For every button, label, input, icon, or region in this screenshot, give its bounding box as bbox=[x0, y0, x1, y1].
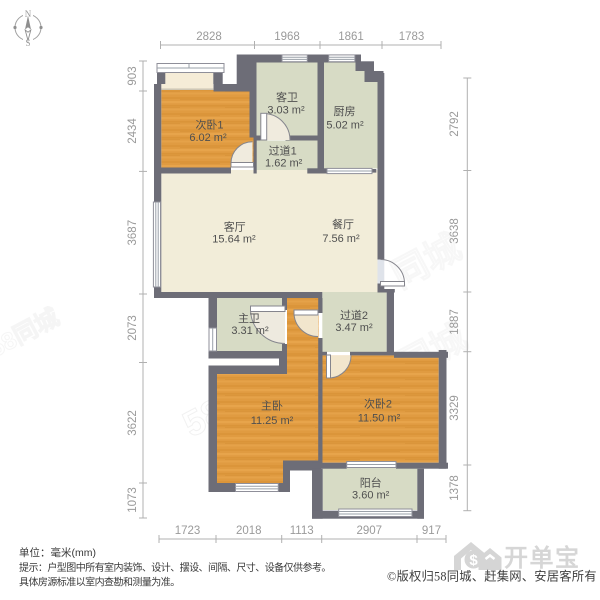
svg-text:2792: 2792 bbox=[449, 111, 461, 137]
svg-text:1783: 1783 bbox=[399, 31, 425, 43]
svg-text:餐厅: 餐厅 bbox=[332, 217, 354, 231]
svg-text:1968: 1968 bbox=[274, 31, 300, 43]
svg-text:3687: 3687 bbox=[127, 220, 139, 246]
svg-text:提示：户型图中所有室内装饰、设计、摆设、间隔、尺寸、设备仅供: 提示：户型图中所有室内装饰、设计、摆设、间隔、尺寸、设备仅供参考。 bbox=[19, 561, 331, 574]
svg-text:过道1: 过道1 bbox=[269, 143, 297, 157]
svg-text:©版权归58同城、赶集网、安居客所有: ©版权归58同城、赶集网、安居客所有 bbox=[387, 569, 597, 584]
svg-text:1073: 1073 bbox=[127, 487, 139, 513]
svg-text:阳台: 阳台 bbox=[360, 476, 382, 490]
svg-text:2907: 2907 bbox=[357, 525, 383, 537]
svg-text:3329: 3329 bbox=[449, 395, 461, 421]
svg-text:主卫: 主卫 bbox=[238, 312, 260, 325]
svg-text:1887: 1887 bbox=[449, 309, 461, 335]
svg-text:2073: 2073 bbox=[127, 315, 139, 341]
svg-text:1861: 1861 bbox=[338, 31, 364, 43]
svg-text:开单宝: 开单宝 bbox=[504, 544, 581, 572]
svg-text:客厅: 客厅 bbox=[224, 220, 246, 234]
svg-text:3.03 m²: 3.03 m² bbox=[267, 105, 305, 117]
svg-text:具体房源标准以室内查勘和测量为准。: 具体房源标准以室内查勘和测量为准。 bbox=[19, 576, 180, 589]
svg-text:客卫: 客卫 bbox=[276, 90, 298, 104]
svg-text:次卧2: 次卧2 bbox=[364, 397, 392, 411]
svg-text:917: 917 bbox=[422, 525, 441, 537]
svg-text:2018: 2018 bbox=[236, 525, 262, 537]
svg-text:1.62 m²: 1.62 m² bbox=[265, 157, 303, 169]
svg-text:3.47 m²: 3.47 m² bbox=[335, 322, 373, 334]
svg-text:3.31 m²: 3.31 m² bbox=[231, 325, 269, 337]
svg-text:3638: 3638 bbox=[449, 218, 461, 244]
svg-text:过道2: 过道2 bbox=[340, 308, 368, 322]
svg-text:厨房: 厨房 bbox=[334, 105, 356, 118]
svg-text:2828: 2828 bbox=[196, 31, 222, 43]
svg-text:1378: 1378 bbox=[449, 475, 461, 501]
svg-text:次卧1: 次卧1 bbox=[195, 118, 223, 132]
svg-text:11.25 m²: 11.25 m² bbox=[251, 415, 294, 427]
svg-text:单位：毫米(mm): 单位：毫米(mm) bbox=[19, 546, 96, 559]
svg-text:1723: 1723 bbox=[175, 525, 201, 537]
svg-text:2434: 2434 bbox=[127, 118, 139, 144]
svg-text:1113: 1113 bbox=[290, 525, 314, 537]
svg-text:3622: 3622 bbox=[127, 410, 139, 436]
svg-text:15.64 m²: 15.64 m² bbox=[212, 234, 256, 246]
svg-text:3.60 m²: 3.60 m² bbox=[352, 490, 390, 502]
svg-text:$: $ bbox=[469, 552, 478, 569]
svg-text:6.02 m²: 6.02 m² bbox=[189, 132, 227, 144]
svg-text:主卧: 主卧 bbox=[261, 400, 283, 413]
svg-text:5.02 m²: 5.02 m² bbox=[326, 119, 364, 131]
svg-text:903: 903 bbox=[127, 66, 139, 85]
svg-text:7.56 m²: 7.56 m² bbox=[322, 233, 360, 245]
svg-text:11.50 m²: 11.50 m² bbox=[358, 413, 401, 425]
